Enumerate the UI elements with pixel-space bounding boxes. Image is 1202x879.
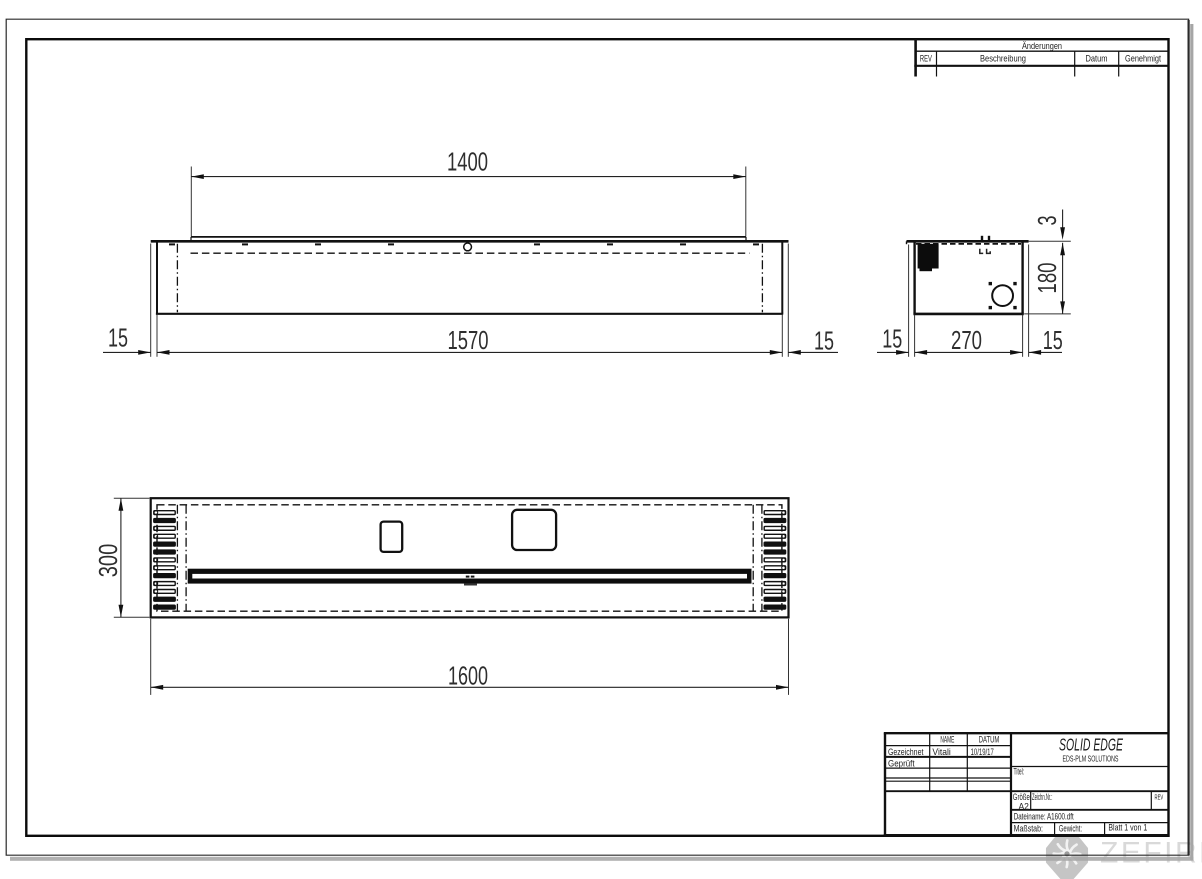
svg-text:Datum: Datum <box>1086 54 1108 65</box>
svg-text:15: 15 <box>882 323 902 353</box>
svg-text:NAME: NAME <box>940 735 954 745</box>
svg-text:Gewicht:: Gewicht: <box>1059 823 1082 834</box>
svg-text:10/19/17: 10/19/17 <box>971 747 994 758</box>
svg-text:15: 15 <box>814 326 834 356</box>
svg-text:REV: REV <box>920 54 932 64</box>
svg-text:3: 3 <box>1032 216 1062 226</box>
svg-text:Vitali: Vitali <box>932 747 950 758</box>
svg-text:REV: REV <box>1155 792 1164 801</box>
svg-text:270: 270 <box>951 325 982 355</box>
svg-text:Titel:: Titel: <box>1014 766 1025 776</box>
svg-text:DATUM: DATUM <box>979 735 1000 745</box>
svg-text:15: 15 <box>108 323 128 353</box>
svg-text:Geprüft: Geprüft <box>888 758 915 769</box>
svg-text:1400: 1400 <box>447 146 488 176</box>
svg-text:180: 180 <box>1032 263 1062 294</box>
svg-text:15: 15 <box>1043 325 1063 355</box>
svg-text:Gezeichnet: Gezeichnet <box>888 747 924 758</box>
svg-text:EDS-PLM SOLUTIONS: EDS-PLM SOLUTIONS <box>1063 754 1119 764</box>
svg-text:1600: 1600 <box>448 660 488 690</box>
svg-text:Genehmigt: Genehmigt <box>1125 54 1161 65</box>
svg-text:A2: A2 <box>1018 801 1029 811</box>
svg-text:SOLID EDGE: SOLID EDGE <box>1059 734 1123 754</box>
svg-text:Beschreibung: Beschreibung <box>980 54 1026 65</box>
svg-text:1570: 1570 <box>448 325 489 355</box>
svg-text:Änderungen: Änderungen <box>1022 41 1062 52</box>
svg-text:Blatt 1 von 1: Blatt 1 von 1 <box>1108 823 1147 834</box>
svg-text:Dateiname: A1600.dft: Dateiname: A1600.dft <box>1014 811 1074 822</box>
svg-text:300: 300 <box>93 544 123 578</box>
svg-text:Zeichn.Nr.:: Zeichn.Nr.: <box>1032 792 1052 802</box>
svg-text:ZEFIRE: ZEFIRE <box>1100 837 1202 870</box>
svg-text:Maßstab:: Maßstab: <box>1014 823 1043 834</box>
